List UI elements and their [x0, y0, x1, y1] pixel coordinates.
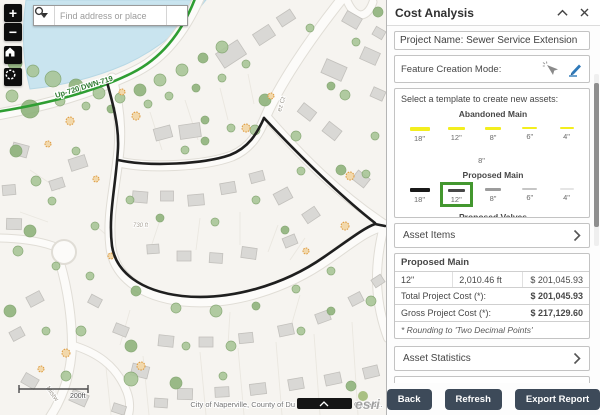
- cost-table-rows: 12"2,010.46 ft$ 201,045.93: [395, 272, 589, 288]
- swatch-label: 4": [563, 194, 570, 202]
- draw-pencil-icon[interactable]: [567, 61, 583, 77]
- svg-text:esri: esri: [355, 396, 381, 412]
- locate-icon: [4, 68, 17, 81]
- template-prompt: Select a template to create new assets:: [401, 94, 585, 104]
- panel-title: Cost Analysis: [395, 6, 548, 20]
- swatch-line: [410, 127, 430, 131]
- cost-table-header: Proposed Main: [395, 254, 589, 272]
- swatch-line: [410, 188, 430, 192]
- template-swatch-proposed-main-4in[interactable]: 4": [550, 182, 583, 207]
- back-button[interactable]: Back: [387, 389, 432, 410]
- template-swatch-row: 18"12"8"6"4": [401, 182, 585, 207]
- template-swatch-proposed-main-18in[interactable]: 18": [403, 182, 436, 207]
- table-cell: 2,010.46 ft: [453, 272, 523, 287]
- cul-de-sac: [52, 240, 76, 264]
- smart-select-cursor-icon[interactable]: [542, 61, 558, 77]
- swatch-line: [560, 127, 574, 129]
- table-row: 12"2,010.46 ft$ 201,045.93: [395, 272, 589, 288]
- search-bar: [33, 5, 188, 26]
- table-total-row: Total Project Cost (*):$ 201,045.93: [395, 288, 589, 305]
- feature-creation-mode-row: Feature Creation Mode:: [394, 55, 590, 83]
- cost-table-totals: Total Project Cost (*):$ 201,045.93Gross…: [395, 288, 589, 322]
- swatch-label: 8": [490, 134, 497, 142]
- template-swatch-abandoned-main-18in[interactable]: 18": [403, 121, 436, 144]
- template-swatch-proposed-main-12in[interactable]: 12": [440, 182, 473, 207]
- template-groups: Abandoned Main18"12"8"6"4"8"Proposed Mai…: [401, 109, 585, 218]
- search-input[interactable]: [55, 6, 166, 25]
- template-swatch-abandoned-main-6in[interactable]: 6": [513, 121, 546, 144]
- home-button[interactable]: [4, 46, 22, 64]
- swatch-line: [522, 127, 537, 129]
- swatch-line: [474, 150, 490, 153]
- chevron-right-icon: [573, 229, 581, 242]
- swatch-line: [560, 188, 574, 190]
- attribution-expander-pill[interactable]: [297, 398, 352, 409]
- search-icon: [34, 6, 46, 18]
- table-cell: $ 201,045.93: [523, 272, 589, 287]
- scrollbar-thumb[interactable]: [594, 83, 599, 227]
- map-view[interactable]: Up-720 DWN-719 ez Ct Mistw 730 ft 200ft …: [0, 0, 386, 415]
- total-value: $ 217,129.60: [530, 308, 583, 318]
- plus-icon: +: [9, 5, 17, 21]
- template-swatch-abandoned-main-8in[interactable]: 8": [477, 121, 510, 144]
- collapse-icon: [557, 8, 568, 17]
- cost-table: Proposed Main 12"2,010.46 ft$ 201,045.93…: [394, 253, 590, 339]
- template-swatch-abandoned-main-4in[interactable]: 4": [550, 121, 583, 144]
- swatch-label: 12": [451, 134, 462, 142]
- locate-button[interactable]: [4, 68, 22, 86]
- swatch-line: [485, 127, 501, 130]
- project-name-box: Project Name: Sewer Service Extension: [394, 31, 590, 50]
- chevron-right-icon: [573, 382, 581, 383]
- template-swatch-row: 18"12"8"6"4"8": [401, 121, 585, 165]
- home-icon: [4, 46, 16, 58]
- zoom-in-button[interactable]: +: [4, 4, 22, 22]
- scale-bar-label: 200ft: [70, 393, 86, 400]
- swatch-label: 18": [414, 196, 425, 204]
- template-swatch-abandoned-main-8in[interactable]: 8": [465, 144, 498, 166]
- template-group-title: Proposed Main: [401, 170, 585, 180]
- swatch-line: [485, 188, 501, 191]
- swatch-label: 18": [414, 135, 425, 143]
- total-value: $ 201,045.93: [530, 291, 583, 301]
- close-button[interactable]: [576, 6, 592, 20]
- panel-scrollbar[interactable]: [594, 74, 599, 246]
- collapse-button[interactable]: [554, 6, 570, 20]
- attribution-text-left: City of Naperville, County of Du: [190, 400, 295, 409]
- swatch-line: [448, 189, 465, 192]
- asset-statistics-label: Asset Statistics: [403, 353, 471, 364]
- panel-header: Cost Analysis: [387, 0, 600, 26]
- table-cell: 12": [395, 272, 453, 287]
- feature-mode-label: Feature Creation Mode:: [401, 64, 501, 75]
- zoom-out-button[interactable]: −: [4, 23, 22, 41]
- swatch-label: 4": [563, 133, 570, 141]
- asset-statistics-expander[interactable]: Asset Statistics: [394, 346, 590, 371]
- swatch-label: 6": [526, 194, 533, 202]
- map-canvas[interactable]: Up-720 DWN-719 ez Ct Mistw 730 ft 200ft …: [0, 0, 386, 415]
- close-icon: [580, 8, 589, 17]
- table-total-row: Gross Project Cost (*):$ 217,129.60: [395, 305, 589, 322]
- swatch-label: 8": [478, 157, 485, 165]
- swatch-line: [448, 127, 465, 130]
- search-button[interactable]: [166, 6, 187, 25]
- panel-body: Project Name: Sewer Service Extension Fe…: [387, 26, 600, 383]
- template-swatch-proposed-main-8in[interactable]: 8": [477, 182, 510, 207]
- total-label: Total Project Cost (*):: [401, 291, 486, 301]
- template-group-title: Abandoned Main: [401, 109, 585, 119]
- template-group-title: Proposed Valves: [401, 212, 585, 219]
- project-summary-expander[interactable]: Project Summary: [394, 376, 590, 383]
- swatch-label: 12": [451, 196, 462, 204]
- cost-analysis-app: Up-720 DWN-719 ez Ct Mistw 730 ft 200ft …: [0, 0, 600, 415]
- template-picker-card: Select a template to create new assets: …: [394, 88, 590, 218]
- minus-icon: −: [9, 24, 17, 40]
- asset-items-expander[interactable]: Asset Items: [394, 223, 590, 248]
- total-label: Gross Project Cost (*):: [401, 308, 491, 318]
- template-swatch-proposed-main-6in[interactable]: 6": [513, 182, 546, 207]
- refresh-button[interactable]: Refresh: [445, 389, 502, 410]
- parcel-area-label: 730 ft: [133, 223, 148, 229]
- panel-footer: Back Refresh Export Report: [387, 383, 600, 415]
- swatch-line: [522, 188, 537, 190]
- swatch-label: 6": [526, 133, 533, 141]
- swatch-label: 8": [490, 195, 497, 203]
- project-name-text: Project Name: Sewer Service Extension: [400, 35, 577, 46]
- template-swatch-abandoned-main-12in[interactable]: 12": [440, 121, 473, 144]
- asset-items-label: Asset Items: [403, 230, 455, 241]
- export-report-button[interactable]: Export Report: [515, 389, 600, 410]
- cost-table-footnote: * Rounding to 'Two Decimal Points': [395, 322, 589, 338]
- cost-analysis-panel: Cost Analysis Project Name: Sewer Servic…: [386, 0, 600, 415]
- chevron-right-icon: [573, 352, 581, 365]
